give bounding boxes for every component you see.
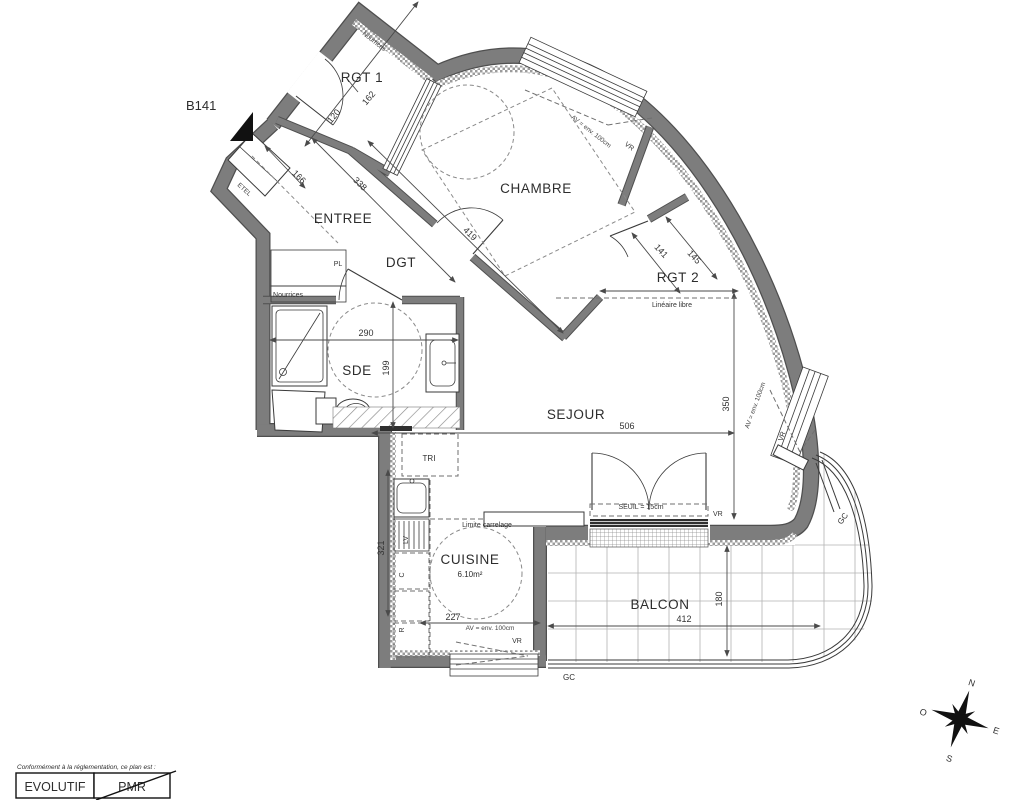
dim-balcon-180: 180 bbox=[714, 591, 724, 606]
compass-o: O bbox=[918, 706, 928, 718]
dim-cuisine-321: 321 bbox=[376, 540, 386, 555]
note-r: R bbox=[399, 627, 406, 632]
glazed-partition-rgt1 bbox=[383, 79, 441, 176]
window-sejour-east bbox=[770, 367, 828, 470]
door-balcony-french bbox=[588, 453, 710, 547]
shower bbox=[272, 306, 327, 386]
balcony-railing bbox=[548, 452, 872, 668]
dim-entree-166: 166 bbox=[290, 168, 308, 186]
note-pl: PL bbox=[334, 261, 343, 268]
note-tri: TRI bbox=[423, 454, 436, 463]
floor-plan-page: B141 RGT 1 CHAMBRE ENTREE DGT RGT 2 SDE … bbox=[0, 0, 1019, 800]
room-label-chambre: CHAMBRE bbox=[500, 181, 572, 196]
compass-n: N bbox=[967, 677, 976, 689]
door-rgt2 bbox=[603, 202, 648, 257]
note-vr-chambre: VR bbox=[623, 141, 635, 153]
note-av-chambre: AV = env. 100cm bbox=[570, 114, 613, 150]
dim-sde-290: 290 bbox=[358, 328, 373, 338]
note-gc-bottom: GC bbox=[563, 673, 575, 682]
room-label-entree: ENTREE bbox=[314, 211, 372, 226]
note-lv: LV bbox=[403, 536, 410, 544]
compass-rose: N E S O bbox=[907, 666, 1012, 776]
dim-sejour-506: 506 bbox=[619, 421, 634, 431]
dim-entree-338: 338 bbox=[351, 175, 369, 193]
note-av-sejour: AV = env. 100cm bbox=[744, 381, 767, 429]
legend-evolutif: EVOLUTIF bbox=[24, 780, 85, 794]
note-lineaire-libre: Linéaire libre bbox=[652, 302, 692, 309]
floor-plan: B141 RGT 1 CHAMBRE ENTREE DGT RGT 2 SDE … bbox=[0, 0, 1019, 800]
dim-cuisine-227: 227 bbox=[445, 612, 460, 622]
dim-rgt1-162: 162 bbox=[360, 89, 377, 107]
dim-balcon-412: 412 bbox=[676, 614, 691, 624]
dim-sde-199: 199 bbox=[381, 360, 391, 375]
dim-rgt1-120: 120 bbox=[325, 107, 342, 125]
sde-floor-hatch bbox=[333, 407, 460, 428]
cuisine-area-label: 6.10m² bbox=[458, 570, 483, 579]
dim-rgt2-145: 145 bbox=[685, 248, 703, 266]
room-label-sejour: SEJOUR bbox=[547, 407, 605, 422]
room-label-balcon: BALCON bbox=[630, 597, 689, 612]
dim-sejour-350: 350 bbox=[721, 396, 731, 411]
note-vr-cuisine: VR bbox=[512, 638, 522, 645]
note-vr-balcon: VR bbox=[713, 511, 723, 518]
legend-intro: Conformément à la réglementation, ce pla… bbox=[17, 764, 156, 771]
room-label-rgt1: RGT 1 bbox=[341, 70, 384, 85]
note-c: C bbox=[399, 572, 406, 577]
entry-marker-triangle bbox=[230, 112, 253, 141]
vanity-sink bbox=[426, 334, 459, 392]
legend: Conformément à la réglementation, ce pla… bbox=[16, 764, 176, 800]
room-label-dgt: DGT bbox=[386, 255, 416, 270]
window-chambre bbox=[519, 37, 652, 125]
window-cuisine bbox=[450, 642, 538, 678]
note-limite-carrelage: Limite carrelage bbox=[462, 522, 512, 529]
note-nourrices-left: Nourrices bbox=[273, 292, 303, 299]
room-label-cuisine: CUISINE bbox=[441, 552, 500, 567]
note-etel: ETEL bbox=[236, 182, 253, 198]
note-gc-right: GC bbox=[836, 511, 850, 526]
note-av-cuisine: AV = env. 100cm bbox=[466, 625, 515, 632]
room-label-rgt2: RGT 2 bbox=[657, 270, 700, 285]
compass-e: E bbox=[992, 725, 1001, 736]
room-label-sde: SDE bbox=[342, 363, 372, 378]
note-seuil: SEUIL = 15cm bbox=[618, 504, 663, 511]
dim-rgt2-141: 141 bbox=[652, 242, 670, 260]
unit-label: B141 bbox=[186, 98, 216, 113]
sde-threshold bbox=[380, 426, 412, 431]
compass-s: S bbox=[945, 753, 954, 764]
